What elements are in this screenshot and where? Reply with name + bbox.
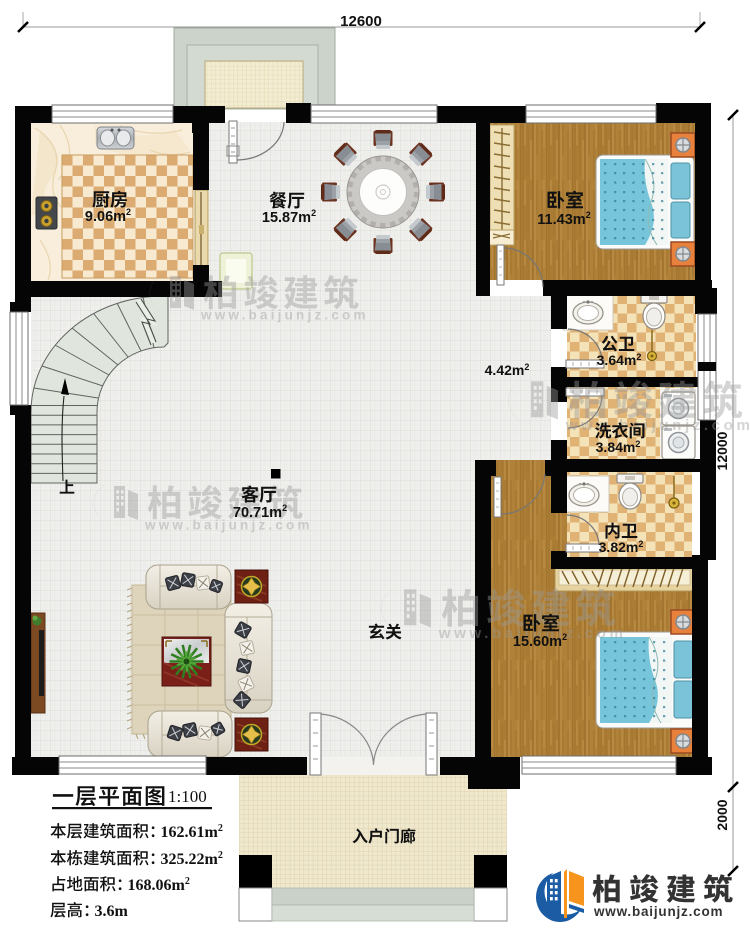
svg-text:15.60m2: 15.60m2 <box>513 632 567 650</box>
svg-text:3.82m2: 3.82m2 <box>599 539 644 555</box>
svg-text:3.84m2: 3.84m2 <box>596 439 641 455</box>
svg-text:www.baijunjz.com: www.baijunjz.com <box>593 904 723 919</box>
svg-text:70.71m2: 70.71m2 <box>233 503 287 521</box>
svg-text:3.6m: 3.6m <box>95 903 129 920</box>
svg-text:1:100: 1:100 <box>168 787 207 806</box>
svg-text:162.61m2: 162.61m2 <box>161 823 223 841</box>
svg-text:12600: 12600 <box>340 13 382 30</box>
svg-text:325.22m2: 325.22m2 <box>161 850 223 868</box>
svg-text:3.64m2: 3.64m2 <box>597 352 642 368</box>
svg-text:11.43m2: 11.43m2 <box>537 210 590 228</box>
svg-text:12000: 12000 <box>714 431 730 470</box>
svg-text:15.87m2: 15.87m2 <box>262 208 316 226</box>
svg-text:9.06m2: 9.06m2 <box>85 207 131 225</box>
svg-text:4.42m2: 4.42m2 <box>485 362 530 378</box>
svg-text:168.06m2: 168.06m2 <box>128 876 190 894</box>
svg-text:2000: 2000 <box>714 799 730 830</box>
